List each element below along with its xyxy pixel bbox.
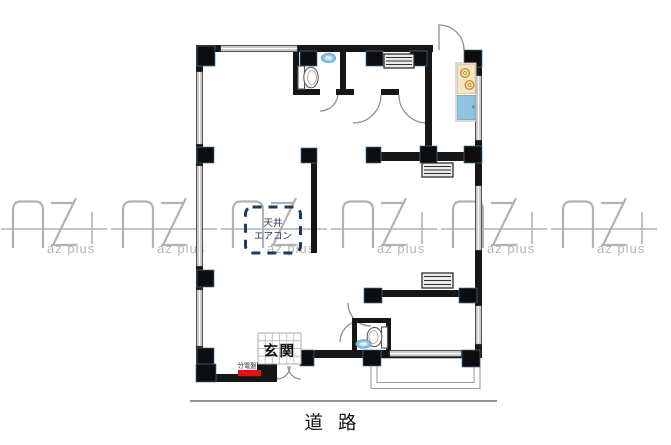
ceiling-aircon-label-line1: 天井 (263, 217, 282, 229)
column (300, 51, 317, 66)
wall-toilet-bottom-2 (336, 89, 346, 95)
floor-plan-page: az plus az plus az plus az plus az plus … (0, 0, 671, 445)
column (197, 147, 214, 163)
columns (196, 46, 482, 382)
column (197, 270, 214, 287)
watermark-text: az plus (47, 241, 95, 256)
wall-toilet2-top (352, 318, 391, 323)
column (196, 364, 216, 382)
column (301, 148, 317, 163)
entrance: 玄関 (258, 333, 301, 364)
louver-vent (422, 163, 453, 177)
toilet-room-bottom (356, 327, 388, 348)
hand-wash-sink-inner (325, 56, 333, 60)
column (363, 350, 381, 366)
wall-toilet-bottom (293, 89, 320, 95)
watermark: az plus az plus az plus az plus az plus … (1, 198, 657, 256)
floor-plan-image: az plus az plus az plus az plus az plus … (0, 0, 671, 445)
middle-room-door-arc-left (353, 95, 381, 123)
kitchen-entry-door-arc (439, 25, 464, 50)
distribution-board-marker (238, 370, 261, 376)
watermark-text: az plus (487, 241, 535, 256)
louver-vent (422, 273, 453, 288)
column (364, 288, 382, 303)
louver-vent (384, 54, 414, 68)
wall-midroom-bottom-a (346, 89, 354, 95)
toilet-bottom-door-arc (340, 321, 361, 342)
road: 道路 (190, 401, 497, 433)
watermark-text: az plus (597, 241, 645, 256)
column (300, 350, 314, 366)
column (420, 146, 437, 163)
toilet-top-door-arc (320, 93, 338, 111)
column (464, 146, 482, 163)
kitchen (456, 63, 476, 121)
ceiling-aircon-label-line2: エアコン (254, 231, 292, 242)
watermark-text: az plus (377, 241, 425, 256)
wall-midroom-bottom-b (381, 89, 399, 95)
wall-mid-partition (311, 163, 317, 253)
column (462, 350, 480, 367)
distribution-board-label: 分電盤 (238, 361, 258, 370)
entrance-label: 玄関 (264, 342, 296, 360)
porch-inner (377, 358, 474, 383)
road-label: 道路 (304, 412, 371, 433)
column (366, 51, 383, 66)
wall-toilet-right (340, 52, 346, 95)
middle-room-door-arc-right (399, 95, 427, 123)
column (459, 288, 477, 303)
column (366, 147, 381, 163)
wall-toilet2-left (352, 318, 357, 352)
column (197, 46, 215, 66)
column (197, 348, 214, 365)
hand-wash-sink-inner (360, 342, 368, 346)
walls (196, 45, 482, 382)
faucet-icon (472, 105, 476, 109)
